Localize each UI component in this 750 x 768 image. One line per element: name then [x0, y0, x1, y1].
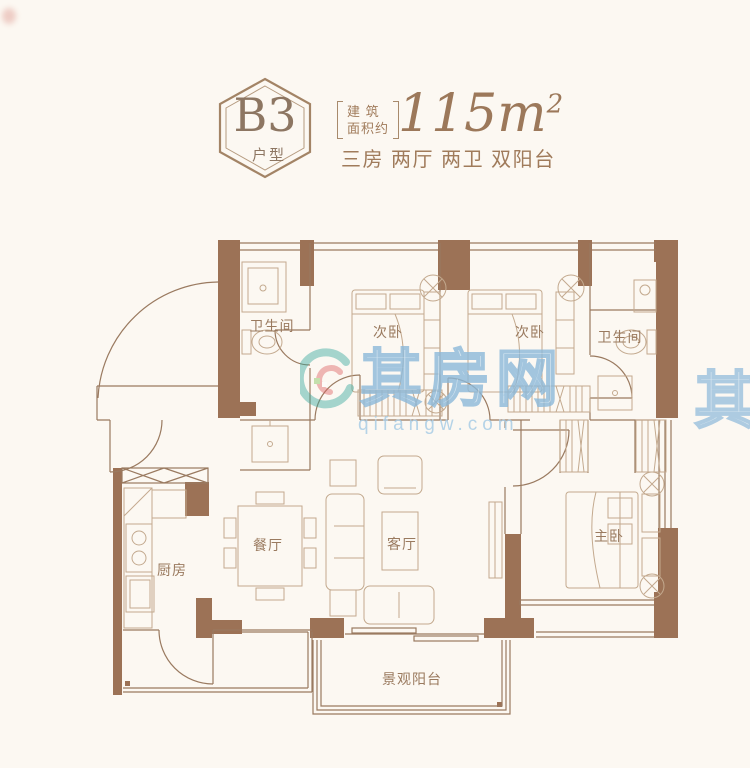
- room-label-master: 主卧: [594, 526, 624, 546]
- watermark-fragment: 其: [694, 350, 750, 440]
- floorplan-svg: [0, 0, 750, 768]
- room-label-bed-left: 次卧: [373, 322, 403, 342]
- room-label-bath-right: 卫生间: [598, 327, 643, 347]
- room-label-living: 客厅: [387, 534, 417, 554]
- room-label-bed-right: 次卧: [515, 322, 545, 342]
- room-label-dining: 餐厅: [253, 535, 283, 555]
- room-label-balcony: 景观阳台: [382, 669, 442, 689]
- watermark-domain: qifangw.com: [358, 414, 519, 436]
- furniture: [124, 262, 666, 628]
- room-label-kitchen: 厨房: [157, 560, 187, 580]
- floorplan: 卫生间 次卧 次卧 卫生间 厨房 餐厅 客厅 主卧 景观阳台: [0, 0, 750, 768]
- floorplan-page: B3 户型 建 筑面积约 115m2 三房 两厅 两卫 双阳台: [0, 0, 750, 768]
- room-label-bath-left: 卫生间: [250, 316, 295, 336]
